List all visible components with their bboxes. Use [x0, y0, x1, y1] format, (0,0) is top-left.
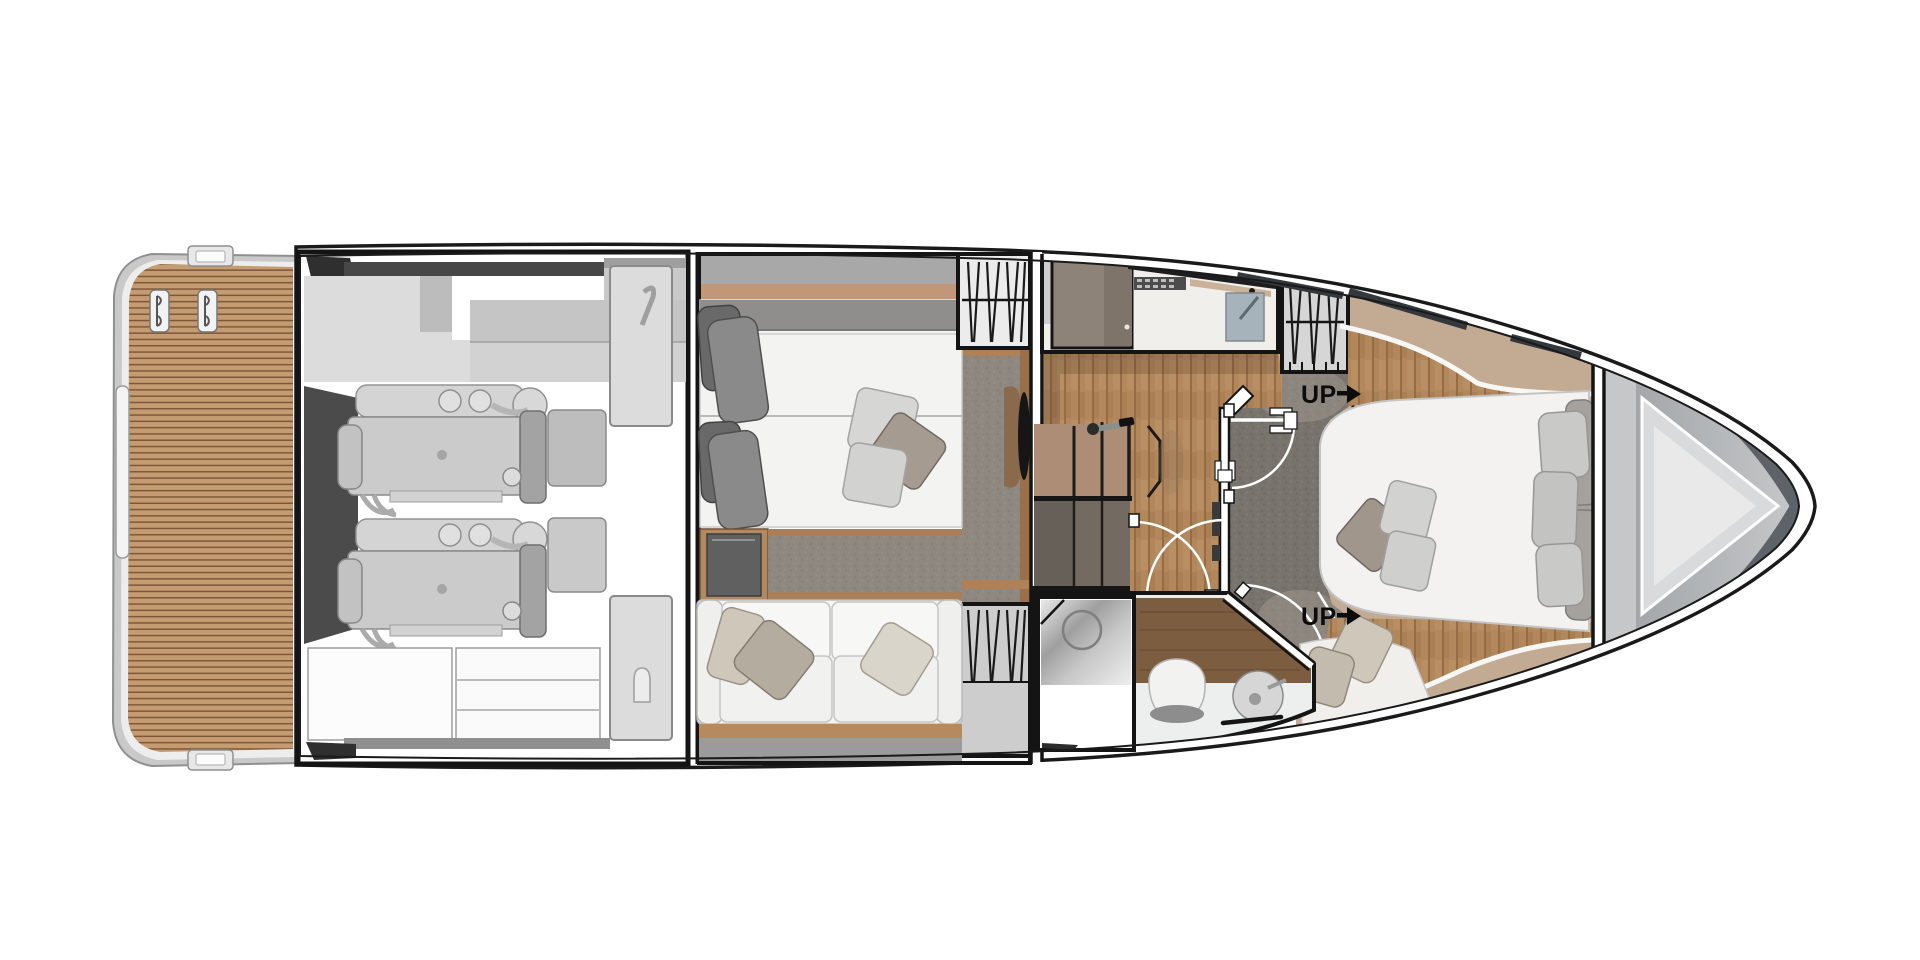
- svg-text:UP: UP: [1301, 603, 1337, 631]
- svg-text:UP: UP: [1301, 381, 1337, 409]
